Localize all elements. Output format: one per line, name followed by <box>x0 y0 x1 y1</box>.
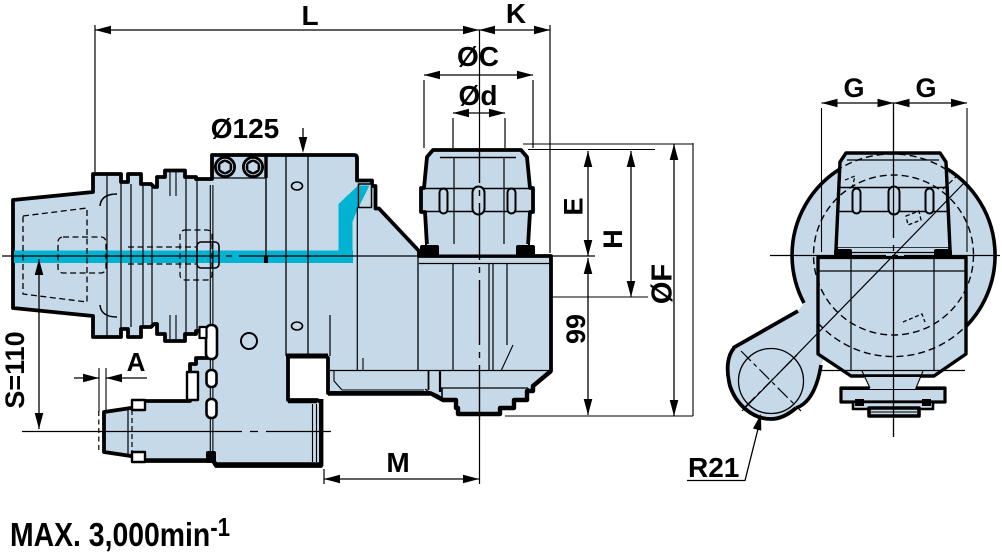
svg-text:M: M <box>386 447 409 478</box>
svg-text:MAX. 3,000min-1: MAX. 3,000min-1 <box>10 513 230 553</box>
svg-text:L: L <box>301 0 318 31</box>
svg-text:99: 99 <box>561 314 591 344</box>
svg-text:K: K <box>506 0 526 29</box>
svg-text:ØF: ØF <box>647 264 679 304</box>
svg-text:S=110: S=110 <box>0 331 30 408</box>
svg-text:R21: R21 <box>688 452 739 483</box>
svg-text:ØC: ØC <box>457 41 499 72</box>
svg-text:Ø125: Ø125 <box>211 113 280 144</box>
svg-text:E: E <box>559 197 589 215</box>
svg-text:G: G <box>915 73 936 103</box>
svg-text:G: G <box>843 73 864 103</box>
svg-text:A: A <box>127 347 146 377</box>
svg-text:Ød: Ød <box>459 80 498 111</box>
svg-text:H: H <box>598 229 628 249</box>
